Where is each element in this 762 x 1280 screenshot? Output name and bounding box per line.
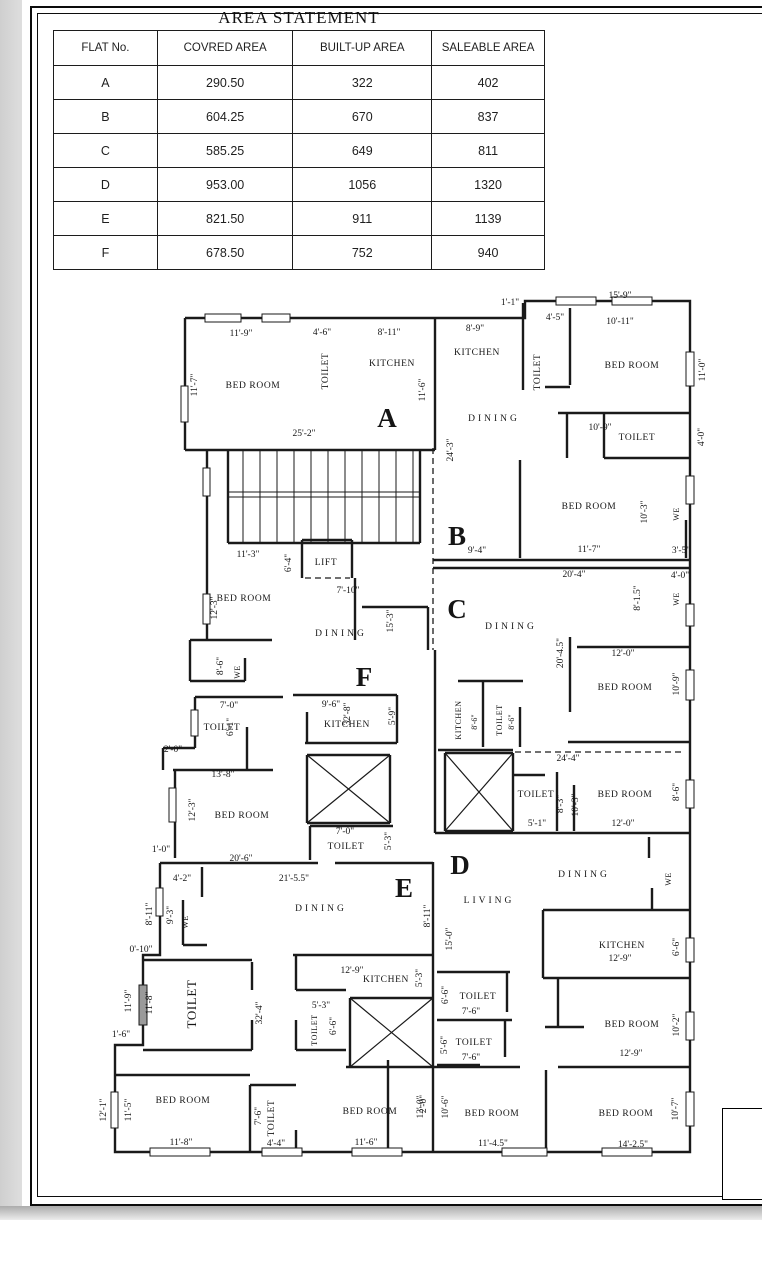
dimension-label: 1'-1": [501, 298, 519, 308]
dimension-label: 10'-2": [672, 1013, 682, 1036]
dimension-label: 8'-11": [378, 328, 401, 338]
flat-label-D: D: [450, 850, 470, 880]
room-label: TOILET: [518, 790, 555, 800]
room-label: BED ROOM: [599, 1109, 654, 1119]
room-label: BED ROOM: [217, 594, 272, 604]
dimension-label: 11'-6": [355, 1138, 378, 1148]
dimension-label: 9'-3": [166, 906, 176, 924]
dimension-label: 15'-9": [608, 291, 631, 301]
room-label: DINING: [558, 870, 610, 880]
room-label: KITCHEN: [454, 348, 500, 358]
room-label: DINING: [315, 629, 367, 639]
title-block-line: SU: [723, 1147, 762, 1159]
room-label: KITCHEN: [369, 359, 415, 369]
dimension-label: 10'-3": [640, 500, 650, 523]
dimension-label: 21'-5.5": [279, 874, 309, 884]
dimension-label: 11'-9": [124, 990, 134, 1013]
room-label: TOILET: [328, 842, 365, 852]
dimension-label: 32'-8": [343, 702, 353, 725]
scan-margin-bottom: [0, 1206, 762, 1220]
room-label: BED ROOM: [605, 361, 660, 371]
we-label: WE: [664, 872, 673, 885]
dimension-label: 11'-3": [237, 550, 260, 560]
dimension-label: 11'-7": [578, 545, 601, 555]
dimension-label: 10'-9": [588, 423, 611, 433]
room-label: BED ROOM: [465, 1109, 520, 1119]
dimension-label: 12'-0": [611, 819, 634, 829]
dimension-label: 11'-6": [418, 379, 428, 402]
dimension-label: 8'-11": [423, 905, 433, 928]
we-label: WE: [672, 507, 681, 520]
dimension-label: 5'-3": [384, 832, 394, 850]
room-label: BED ROOM: [156, 1096, 211, 1106]
dimension-label: 3'-5": [672, 546, 690, 556]
dimension-label: 11'-0": [698, 359, 708, 382]
dimension-label: 8'-11": [145, 903, 155, 926]
dimension-label: 1'-0": [152, 845, 170, 855]
title-block-text: ISAKSUREGIRAJAR: [723, 1135, 762, 1181]
dimension-label: 8'-6": [507, 714, 516, 729]
dimension-label: 8'-6": [470, 714, 479, 729]
room-label: TOILET: [184, 980, 199, 1029]
dimension-label: 8'-9": [466, 324, 484, 334]
dimension-label: 8'-3": [556, 795, 566, 813]
room-label: TOILET: [619, 433, 656, 443]
dimension-label: 10'-3": [571, 793, 581, 816]
dimension-label: 6'-1": [226, 718, 236, 736]
dimension-label: 7'-6": [462, 1007, 480, 1017]
dimension-label: 5'-1": [528, 819, 546, 829]
drawing-sheet: AREA STATEMENT FLAT No.COVRED AREABUILT-…: [0, 0, 762, 1280]
room-label: TOILET: [533, 354, 543, 391]
dimension-label: 5'-3": [312, 1001, 330, 1011]
room-label: DINING: [295, 904, 347, 914]
dimension-label: 10'-7": [671, 1097, 681, 1120]
dimension-label: 9'-6": [322, 700, 340, 710]
room-label: TOILET: [310, 1014, 319, 1045]
dimension-label: 0'-10": [129, 945, 152, 955]
dimension-label: 20'-6": [229, 854, 252, 864]
dimension-label: 6'-6": [672, 938, 682, 956]
title-block: ISAKSUREGIRAJAR: [722, 1108, 762, 1200]
room-label: BED ROOM: [226, 381, 281, 391]
dimension-label: 9'-4": [468, 546, 486, 556]
dimension-label: 11'-8": [170, 1138, 193, 1148]
flat-label-E: E: [395, 873, 413, 903]
dimension-label: 24'-4": [556, 754, 579, 764]
flat-label-C: C: [447, 594, 467, 624]
dimension-label: 20'-4.5": [556, 638, 566, 668]
dimension-label: 12'-3": [188, 798, 198, 821]
room-label: TOILET: [460, 992, 497, 1002]
title-block-line: ISAK: [723, 1135, 762, 1147]
we-label: WE: [181, 915, 190, 928]
dimension-label: 15'-3": [386, 609, 396, 632]
room-label: LIFT: [315, 558, 337, 568]
dimension-label: 7'-6": [254, 1107, 264, 1125]
flat-label-A: A: [377, 403, 397, 433]
dimension-label: 11'-5": [124, 1099, 134, 1122]
dimension-label: 6'-6": [329, 1017, 339, 1035]
room-label: DINING: [485, 622, 537, 632]
plan-labels: ABCDEFBED ROOMTOILETKITCHENKITCHENTOILET…: [99, 291, 708, 1150]
room-label: BED ROOM: [562, 502, 617, 512]
dimension-label: 8'-6": [216, 657, 226, 675]
dimension-label: 10'-9": [672, 672, 682, 695]
dimension-label: 12'-3": [210, 596, 220, 619]
dimension-label: 25'-2": [292, 429, 315, 439]
room-label: KITCHEN: [454, 700, 463, 739]
dimension-label: 5'-9": [388, 707, 398, 725]
dimension-label: 1'-6": [112, 1030, 130, 1040]
dimension-label: 5'-6": [440, 1036, 450, 1054]
room-label: TOILET: [456, 1038, 493, 1048]
dimension-label: 15'-0": [445, 927, 455, 950]
dimension-label: 6'-4": [284, 554, 294, 572]
dimension-label: 12'-9": [619, 1049, 642, 1059]
dimension-label: 24'-3": [446, 438, 456, 461]
room-label: BED ROOM: [343, 1107, 398, 1117]
room-label: DINING: [468, 414, 520, 424]
dimension-label: 12'-9": [608, 954, 631, 964]
dimension-label: 13'-8": [211, 770, 234, 780]
room-label: BED ROOM: [598, 683, 653, 693]
dimension-label: 4'-4": [267, 1139, 285, 1149]
flat-label-F: F: [356, 662, 373, 692]
room-label: LIVING: [464, 896, 515, 906]
stairs: [228, 450, 420, 543]
dimension-label: 7'-0": [336, 827, 354, 837]
dimension-label: 10'-6": [441, 1095, 451, 1118]
dimension-label: 7'-0": [220, 701, 238, 711]
dimension-label: 4'-6": [313, 328, 331, 338]
room-label: KITCHEN: [363, 975, 409, 985]
dimension-label: 4'-5": [546, 313, 564, 323]
dimension-label: 11'-7": [190, 374, 200, 397]
dimension-label: 32'-4": [255, 1001, 265, 1024]
dimension-label: 14'-2.5": [618, 1140, 648, 1150]
dimension-label: 12'-9": [340, 966, 363, 976]
dimension-label: 4'-2": [173, 874, 191, 884]
dimension-label: 11'-8": [145, 992, 155, 1015]
dimension-label: 12'-1": [99, 1098, 109, 1121]
room-label: BED ROOM: [215, 811, 270, 821]
we-label: WE: [672, 592, 681, 605]
dimension-label: 11'-9": [230, 329, 253, 339]
room-label: TOILET: [321, 353, 331, 390]
room-label: BED ROOM: [605, 1020, 660, 1030]
dimension-label: 20'-4": [562, 570, 585, 580]
dimension-label: 12'-0": [416, 1095, 426, 1118]
dimension-label: 2'-0": [164, 745, 182, 755]
dimension-label: 6'-6": [441, 986, 451, 1004]
dimension-label: 8'-6": [672, 783, 682, 801]
dimension-label: 8'-1.5": [633, 585, 643, 611]
dimension-label: 10'-11": [606, 317, 634, 327]
dimension-label: 5'-3": [415, 969, 425, 987]
room-label: BED ROOM: [598, 790, 653, 800]
room-label: TOILET: [495, 704, 504, 735]
room-label: KITCHEN: [599, 941, 645, 951]
room-label: TOILET: [267, 1100, 277, 1137]
flat-label-B: B: [448, 521, 466, 551]
title-block-line: RAJAR: [723, 1170, 762, 1182]
dimension-label: 7'-10": [336, 586, 359, 596]
title-block-line: REGI: [723, 1158, 762, 1170]
dimension-label: 11'-4.5": [478, 1139, 508, 1149]
dimension-label: 4'-0": [697, 428, 707, 446]
dimension-label: 4'-0": [671, 571, 689, 581]
dimension-label: 12'-0": [611, 649, 634, 659]
floor-plan-svg: ABCDEFBED ROOMTOILETKITCHENKITCHENTOILET…: [0, 0, 762, 1280]
we-label: WE: [233, 665, 242, 678]
dimension-label: 7'-6": [462, 1053, 480, 1063]
